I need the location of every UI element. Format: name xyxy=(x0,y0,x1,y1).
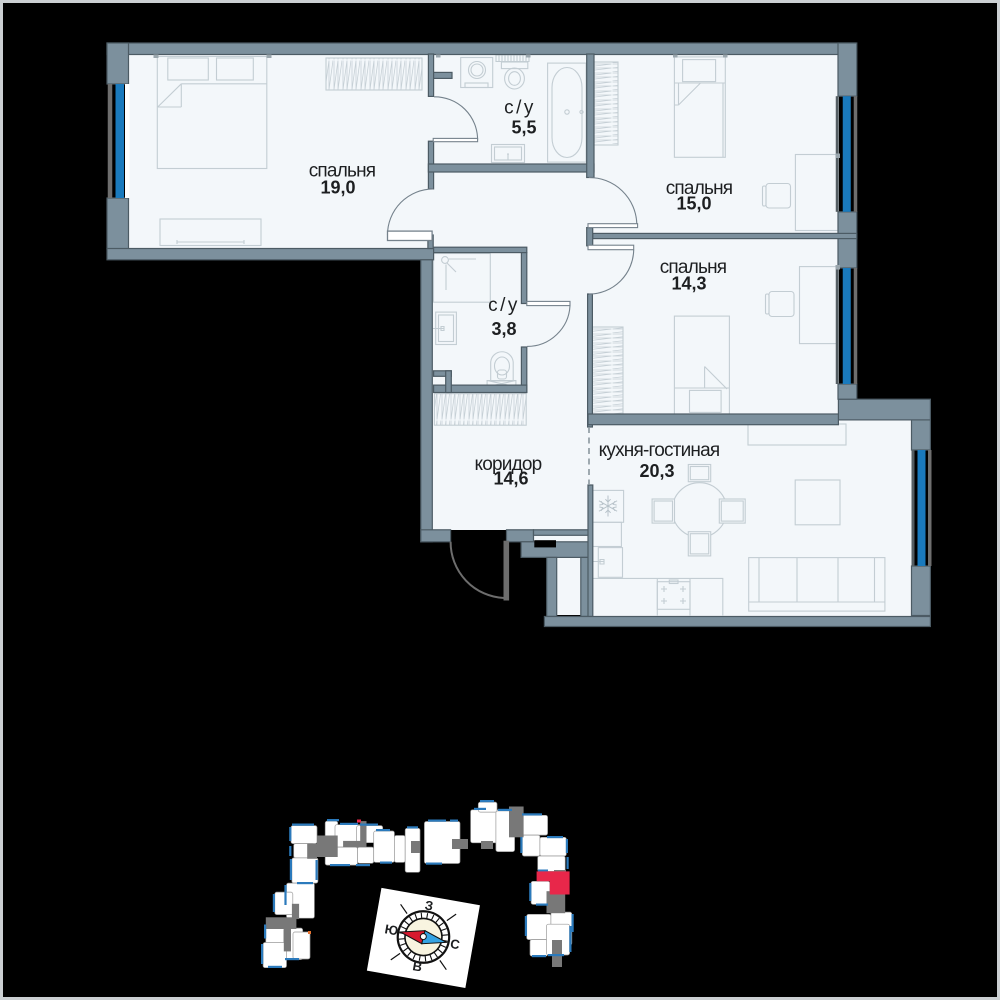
svg-text:19,0: 19,0 xyxy=(320,178,355,198)
svg-text:14,6: 14,6 xyxy=(493,469,528,489)
svg-text:с/у: с/у xyxy=(504,98,536,119)
svg-text:кухня-гостиная: кухня-гостиная xyxy=(599,440,720,461)
svg-text:Ю: Ю xyxy=(384,921,400,938)
svg-text:15,0: 15,0 xyxy=(676,194,711,214)
svg-text:3,8: 3,8 xyxy=(491,319,516,339)
svg-text:14,3: 14,3 xyxy=(671,274,706,294)
svg-text:5,5: 5,5 xyxy=(511,118,536,138)
svg-text:с/у: с/у xyxy=(488,295,520,316)
svg-text:20,3: 20,3 xyxy=(639,461,674,481)
